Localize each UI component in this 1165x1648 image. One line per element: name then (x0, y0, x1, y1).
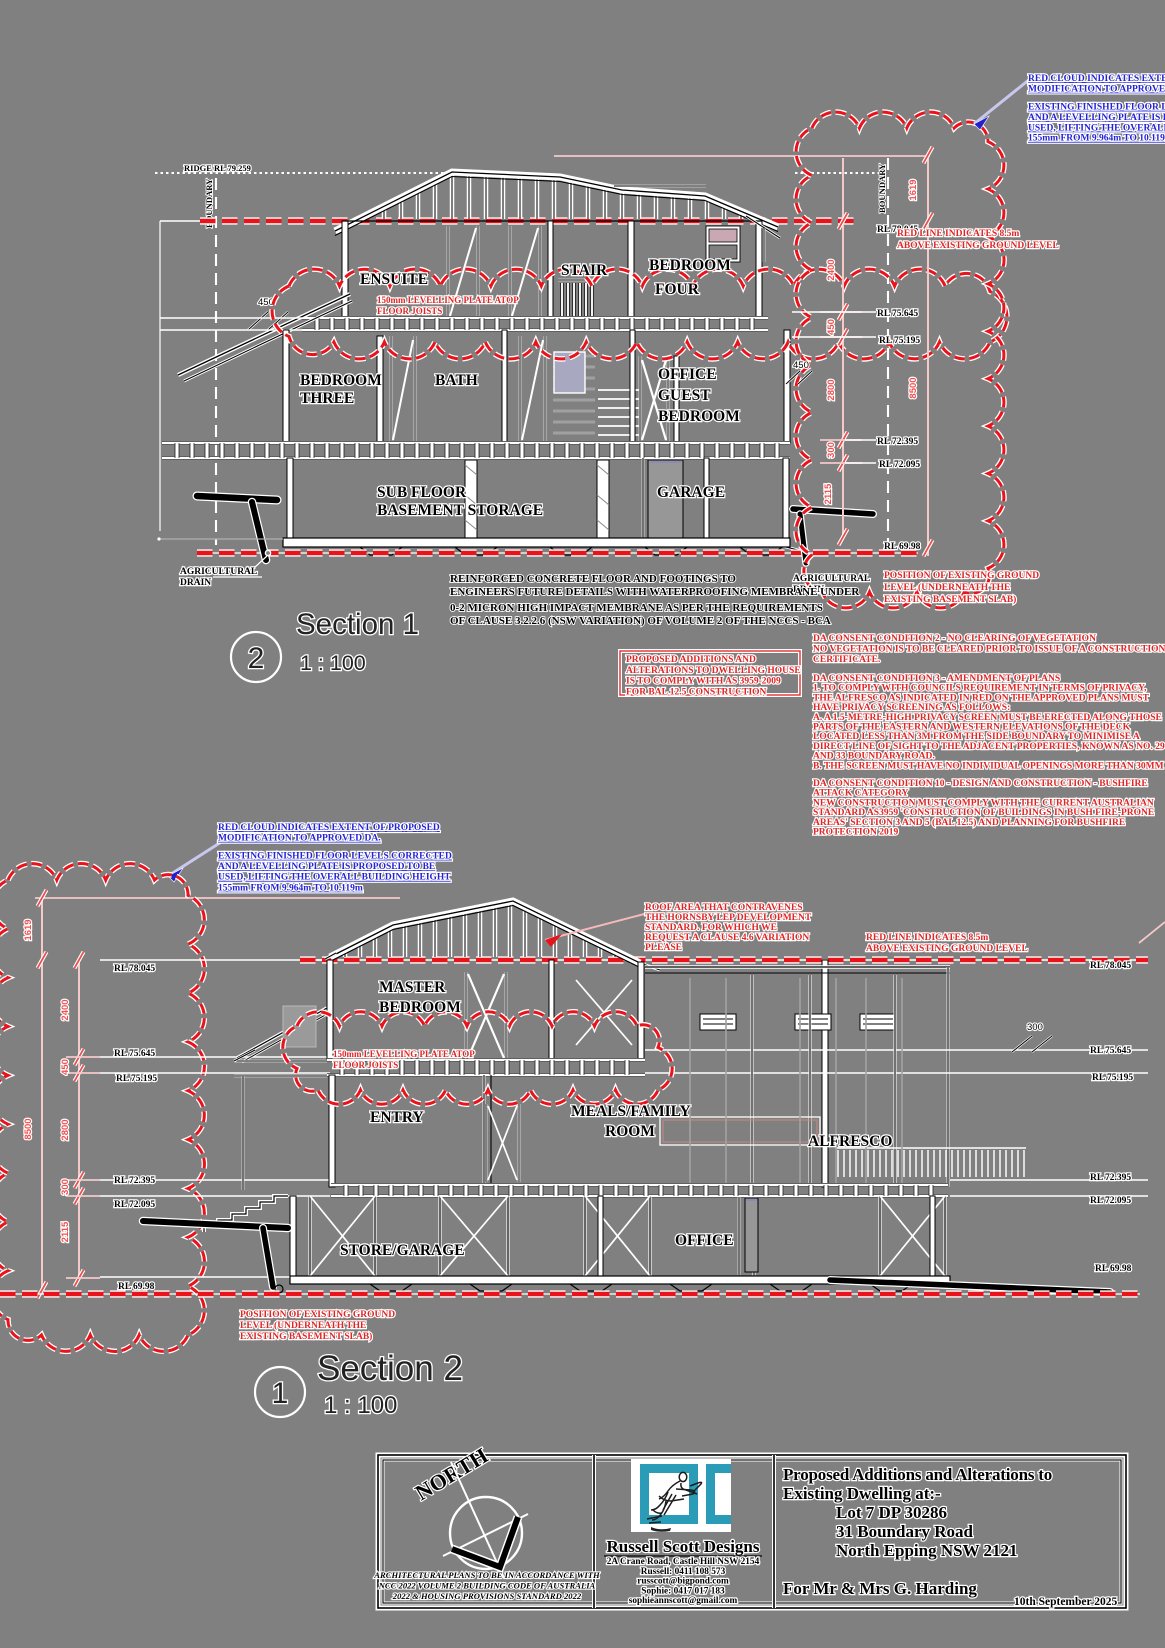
svg-text:1 : 100: 1 : 100 (324, 1392, 397, 1419)
svg-text:HAVE PRIVACY SCREENING AS FOLL: HAVE PRIVACY SCREENING AS FOLLOWS: (813, 703, 1010, 713)
svg-text:B. THE SCREEN MUST HAVE NO IND: B. THE SCREEN MUST HAVE NO INDIVIDUAL OP… (813, 761, 1164, 771)
svg-text:1 : 100: 1 : 100 (300, 651, 366, 675)
svg-text:RED CLOUD INDICATES EXTENT OF: RED CLOUD INDICATES EXTENT OF PROPOSED (218, 823, 440, 833)
svg-text:Lot 7 DP 30286: Lot 7 DP 30286 (836, 1503, 947, 1522)
svg-text:RL 69.98: RL 69.98 (1095, 1264, 1132, 1274)
svg-text:North Epping NSW 2121: North Epping NSW 2121 (836, 1541, 1018, 1560)
svg-text:DIRECT LINE OF SIGHT TO THE AD: DIRECT LINE OF SIGHT TO THE ADJACENT PRO… (813, 742, 1165, 752)
svg-text:PARTS OF THE EASTERN AND WESTE: PARTS OF THE EASTERN AND WESTERN ELEVATI… (813, 723, 1131, 733)
svg-text:RL 75.195: RL 75.195 (879, 336, 920, 346)
svg-text:AND A LEVELLING PLATE IS PROPO: AND A LEVELLING PLATE IS PROPOSED TO BE (218, 862, 435, 872)
svg-text:AND A LEVELLING PLATE IS PROPO: AND A LEVELLING PLATE IS PROPOSED TO BE (1028, 113, 1165, 123)
svg-text:Russell: 0411 108 573: Russell: 0411 108 573 (641, 1567, 726, 1577)
svg-text:450: 450 (826, 319, 837, 335)
svg-text:sophieannscott@gmail.com: sophieannscott@gmail.com (629, 1596, 738, 1606)
svg-text:EXISTING FINISHED FLOOR LEVELS: EXISTING FINISHED FLOOR LEVELS CORRECTED (1028, 103, 1165, 113)
svg-text:For Mr & Mrs G. Harding: For Mr & Mrs G. Harding (783, 1579, 977, 1598)
svg-text:EXISTING FINISHED FLOOR LEVELS: EXISTING FINISHED FLOOR LEVELS CORRECTED (218, 852, 452, 862)
svg-text:STANDARD AS3959 'CONSTRUCTION: STANDARD AS3959 'CONSTRUCTION OF BUILDIN… (813, 808, 1154, 818)
svg-text:150mm LEVELLING PLATE ATOP: 150mm LEVELLING PLATE ATOP (377, 295, 519, 305)
svg-text:300: 300 (60, 1179, 71, 1195)
svg-text:DRAIN: DRAIN (180, 578, 211, 588)
svg-text:BEDROOM: BEDROOM (649, 257, 731, 274)
svg-text:ABOVE EXISTING GROUND LEVEL: ABOVE EXISTING GROUND LEVEL (897, 241, 1059, 251)
svg-text:BEDROOM: BEDROOM (300, 372, 382, 389)
svg-text:2022 & HOUSING PROVISIONS STAN: 2022 & HOUSING PROVISIONS STANDARD 2022 (392, 1591, 582, 1601)
svg-text:THE HORNSBY LEP DEVELOPMENT: THE HORNSBY LEP DEVELOPMENT (645, 913, 812, 923)
svg-text:RL 78.045: RL 78.045 (1090, 961, 1131, 971)
svg-text:ENGINEERS FUTURE DETAILS WITH: ENGINEERS FUTURE DETAILS WITH WATERPROOF… (450, 586, 860, 598)
svg-text:EXISTING BASEMENT SLAB): EXISTING BASEMENT SLAB) (240, 1331, 372, 1342)
svg-text:LOCATED LESS THAN 3M FROM THE: LOCATED LESS THAN 3M FROM THE SIDE BOUND… (813, 732, 1140, 742)
svg-text:150mm LEVELLING PLATE ATOP: 150mm LEVELLING PLATE ATOP (333, 1049, 475, 1059)
svg-text:ENTRY: ENTRY (370, 1109, 424, 1126)
svg-text:RL 72.095: RL 72.095 (1090, 1196, 1131, 1206)
svg-text:10th September 2025: 10th September 2025 (1014, 1596, 1118, 1608)
svg-text:RED CLOUD INDICATES EXTENT OF: RED CLOUD INDICATES EXTENT OF PROPOSED (1028, 74, 1165, 84)
svg-text:BOUNDARY: BOUNDARY (877, 163, 887, 213)
svg-text:FLOOR JOISTS: FLOOR JOISTS (377, 306, 442, 316)
svg-text:OFFICE: OFFICE (658, 366, 717, 383)
svg-text:GUEST: GUEST (658, 387, 711, 404)
svg-text:LEVEL (UNDERNEATH THE: LEVEL (UNDERNEATH THE (240, 1320, 366, 1331)
svg-text:RIDGE RL 79.259: RIDGE RL 79.259 (184, 163, 251, 173)
svg-text:2800: 2800 (826, 379, 837, 400)
svg-text:REINFORCED CONCRETE FLOOR AND: REINFORCED CONCRETE FLOOR AND FOOTINGS T… (450, 573, 736, 585)
svg-text:ALTERATIONS TO DWELLING HOUSE: ALTERATIONS TO DWELLING HOUSE (626, 666, 801, 676)
svg-text:300: 300 (826, 442, 837, 458)
svg-text:PROPOSED ADDITIONS AND: PROPOSED ADDITIONS AND (626, 655, 756, 665)
svg-text:THREE: THREE (300, 390, 354, 407)
svg-text:AND 33 BOUNDARY ROAD.: AND 33 BOUNDARY ROAD. (813, 752, 935, 762)
svg-text:ALFRESCO: ALFRESCO (808, 1133, 892, 1150)
svg-text:A. A 1.5-METRE-HIGH PRIVACY SC: A. A 1.5-METRE-HIGH PRIVACY SCREEN MUST … (813, 713, 1162, 723)
svg-text:MODIFICATION TO APPROVED DA.: MODIFICATION TO APPROVED DA. (218, 834, 381, 844)
svg-text:RL 78.045: RL 78.045 (114, 964, 155, 974)
svg-text:IS TO COMPLY WITH AS 3959-2009: IS TO COMPLY WITH AS 3959-2009 (626, 677, 781, 687)
svg-text:RL 75.195: RL 75.195 (1092, 1073, 1133, 1083)
svg-text:2800: 2800 (60, 1119, 71, 1140)
svg-text:RL 75.645: RL 75.645 (114, 1049, 155, 1059)
svg-text:BEDROOM: BEDROOM (658, 408, 740, 425)
svg-text:Section 1: Section 1 (296, 608, 419, 641)
svg-text:MODIFICATION TO APPROVED DA.: MODIFICATION TO APPROVED DA. (1028, 84, 1165, 94)
svg-text:2115: 2115 (823, 483, 834, 504)
svg-text:RL 72.095: RL 72.095 (114, 1200, 155, 1210)
svg-text:NEW CONSTRUCTION MUST COMPLY W: NEW CONSTRUCTION MUST COMPLY WITH THE CU… (813, 798, 1154, 808)
svg-text:SUB FLOOR: SUB FLOOR (377, 484, 467, 501)
svg-text:LEVEL (UNDERNEATH THE: LEVEL (UNDERNEATH THE (884, 582, 1010, 593)
svg-text:PLEASE: PLEASE (645, 943, 682, 953)
svg-text:AGRICULTURAL: AGRICULTURAL (793, 574, 870, 584)
svg-text:450: 450 (60, 1059, 71, 1075)
svg-text:USED, LIFTING THE OVERALL BUIL: USED, LIFTING THE OVERALL BUILDING HEIGH… (1028, 123, 1165, 133)
svg-text:DA CONSENT CONDITION 10 - DESI: DA CONSENT CONDITION 10 - DESIGN AND CON… (813, 779, 1148, 789)
svg-text:ROOF AREA THAT CONTRAVENES: ROOF AREA THAT CONTRAVENES (645, 903, 803, 913)
svg-text:RL 75.645: RL 75.645 (877, 309, 918, 319)
svg-text:USED, LIFTING THE OVERALL BUIL: USED, LIFTING THE OVERALL BUILDING HEIGH… (218, 873, 451, 883)
svg-text:RL 72.395: RL 72.395 (114, 1176, 155, 1186)
svg-text:RL 72.395: RL 72.395 (1090, 1173, 1131, 1183)
svg-text:MEALS/FAMILY: MEALS/FAMILY (571, 1103, 691, 1120)
svg-text:155mm FROM 9.964m TO 10.119m: 155mm FROM 9.964m TO 10.119m (218, 883, 363, 893)
svg-text:8500: 8500 (908, 377, 919, 398)
svg-text:RL 72.095: RL 72.095 (879, 460, 920, 470)
svg-text:ATTACK CATEGORY: ATTACK CATEGORY (813, 789, 909, 799)
svg-text:450: 450 (793, 360, 809, 371)
svg-text:russcott@bigpond.com: russcott@bigpond.com (637, 1577, 729, 1587)
svg-text:MASTER: MASTER (379, 979, 446, 996)
svg-text:REQUEST A CLAUSE 4.6 VARIATION: REQUEST A CLAUSE 4.6 VARIATION (645, 933, 809, 943)
svg-text:ENSUITE: ENSUITE (360, 271, 428, 288)
svg-text:THE ALFRESCO AS INDICATED IN R: THE ALFRESCO AS INDICATED IN RED ON THE … (813, 693, 1150, 703)
svg-text:RL 75.195: RL 75.195 (116, 1074, 157, 1084)
svg-text:2A Crane Road, Castle Hill NS: 2A Crane Road, Castle Hill NSW 2154 (607, 1557, 760, 1567)
svg-text:PROTECTION 2019: PROTECTION 2019 (813, 828, 898, 838)
svg-text:STORE/GARAGE: STORE/GARAGE (340, 1242, 465, 1259)
svg-text:8500: 8500 (23, 1118, 34, 1139)
svg-text:BATH: BATH (435, 372, 478, 389)
svg-text:EXISTING BASEMENT SLAB): EXISTING BASEMENT SLAB) (884, 594, 1016, 605)
svg-text:Existing Dwelling at:-: Existing Dwelling at:- (783, 1484, 941, 1503)
svg-text:BEDROOM: BEDROOM (379, 999, 461, 1016)
svg-text:Section 2: Section 2 (317, 1349, 463, 1388)
svg-text:DA CONSENT CONDITION 3 - AMEND: DA CONSENT CONDITION 3 - AMENDMENT OF PL… (813, 674, 1060, 684)
svg-text:ROOM: ROOM (605, 1123, 655, 1140)
svg-text:1. TO COMPLY WITH COUNCILS REQ: 1. TO COMPLY WITH COUNCILS REQUIREMENT I… (813, 684, 1147, 694)
svg-text:1619: 1619 (908, 179, 919, 200)
svg-text:RED LINE INDICATES 8.5m: RED LINE INDICATES 8.5m (866, 933, 988, 943)
svg-text:BASEMENT STORAGE: BASEMENT STORAGE (377, 502, 543, 519)
svg-text:POSITION OF EXISTING GROUND: POSITION OF EXISTING GROUND (884, 571, 1039, 581)
svg-text:STANDARD. FOR WHICH WE: STANDARD. FOR WHICH WE (645, 923, 777, 933)
svg-text:0-2 MICRON HIGH IMPACT MEMBRAN: 0-2 MICRON HIGH IMPACT MEMBRANE AS PER T… (450, 602, 823, 614)
svg-text:AGRICULTURAL: AGRICULTURAL (180, 567, 257, 577)
svg-text:GARAGE: GARAGE (657, 484, 725, 501)
svg-text:DA CONSENT CONDITION 2 - NO CL: DA CONSENT CONDITION 2 - NO CLEARING OF … (813, 634, 1096, 644)
svg-text:Sophie: 0417 017 183: Sophie: 0417 017 183 (641, 1586, 725, 1596)
svg-text:ARCHITECTURAL PLANS TO BE IN A: ARCHITECTURAL PLANS TO BE IN ACCORDANCE … (373, 1570, 600, 1580)
svg-text:RL 72.395: RL 72.395 (877, 437, 918, 447)
svg-text:NO VEGETATION IS TO BE CLEARED: NO VEGETATION IS TO BE CLEARED PRIOR TO … (813, 645, 1165, 655)
svg-text:300: 300 (1027, 1022, 1043, 1033)
svg-text:1619: 1619 (23, 919, 34, 940)
svg-text:Proposed Additions and Alterat: Proposed Additions and Alterations to (783, 1465, 1052, 1484)
svg-text:2400: 2400 (60, 999, 71, 1020)
svg-text:2115: 2115 (60, 1221, 71, 1242)
svg-text:Russell Scott Designs: Russell Scott Designs (606, 1537, 759, 1556)
svg-text:NCC 2022 VOLUME 2 BUILDING COD: NCC 2022 VOLUME 2 BUILDING CODE OF AUSTR… (378, 1581, 596, 1591)
svg-text:FOUR: FOUR (655, 281, 700, 298)
svg-text:OFFICE: OFFICE (675, 1232, 734, 1249)
svg-text:RL 75.645: RL 75.645 (1090, 1046, 1131, 1056)
svg-text:STAIR: STAIR (561, 262, 608, 279)
svg-text:FOR BAL 12.5 CONSTRUCTION: FOR BAL 12.5 CONSTRUCTION (626, 687, 767, 697)
svg-text:FLOOR JOISTS: FLOOR JOISTS (333, 1060, 398, 1070)
svg-text:1: 1 (272, 1377, 289, 1410)
svg-text:RL 69.98: RL 69.98 (884, 542, 921, 552)
svg-text:2400: 2400 (826, 259, 837, 280)
svg-text:RED LINE INDICATES 8.5m: RED LINE INDICATES 8.5m (897, 229, 1019, 239)
svg-text:CERTIFICATE.: CERTIFICATE. (813, 655, 880, 665)
svg-text:2: 2 (248, 642, 265, 675)
svg-text:ABOVE EXISTING GROUND LEVEL: ABOVE EXISTING GROUND LEVEL (866, 944, 1028, 954)
svg-text:OF CLAUSE 3.2.2.6 (NSW VARIATI: OF CLAUSE 3.2.2.6 (NSW VARIATION) OF VOL… (450, 615, 831, 627)
svg-text:POSITION OF EXISTING GROUND: POSITION OF EXISTING GROUND (240, 1310, 395, 1320)
svg-text:155mm FROM 9.964m TO 10.119m: 155mm FROM 9.964m TO 10.119m (1028, 134, 1165, 144)
svg-text:AREAS' SECTION 3 AND 5 (BAL 12: AREAS' SECTION 3 AND 5 (BAL 12.5) AND PL… (813, 817, 1125, 828)
svg-text:31 Boundary Road: 31 Boundary Road (836, 1522, 974, 1541)
